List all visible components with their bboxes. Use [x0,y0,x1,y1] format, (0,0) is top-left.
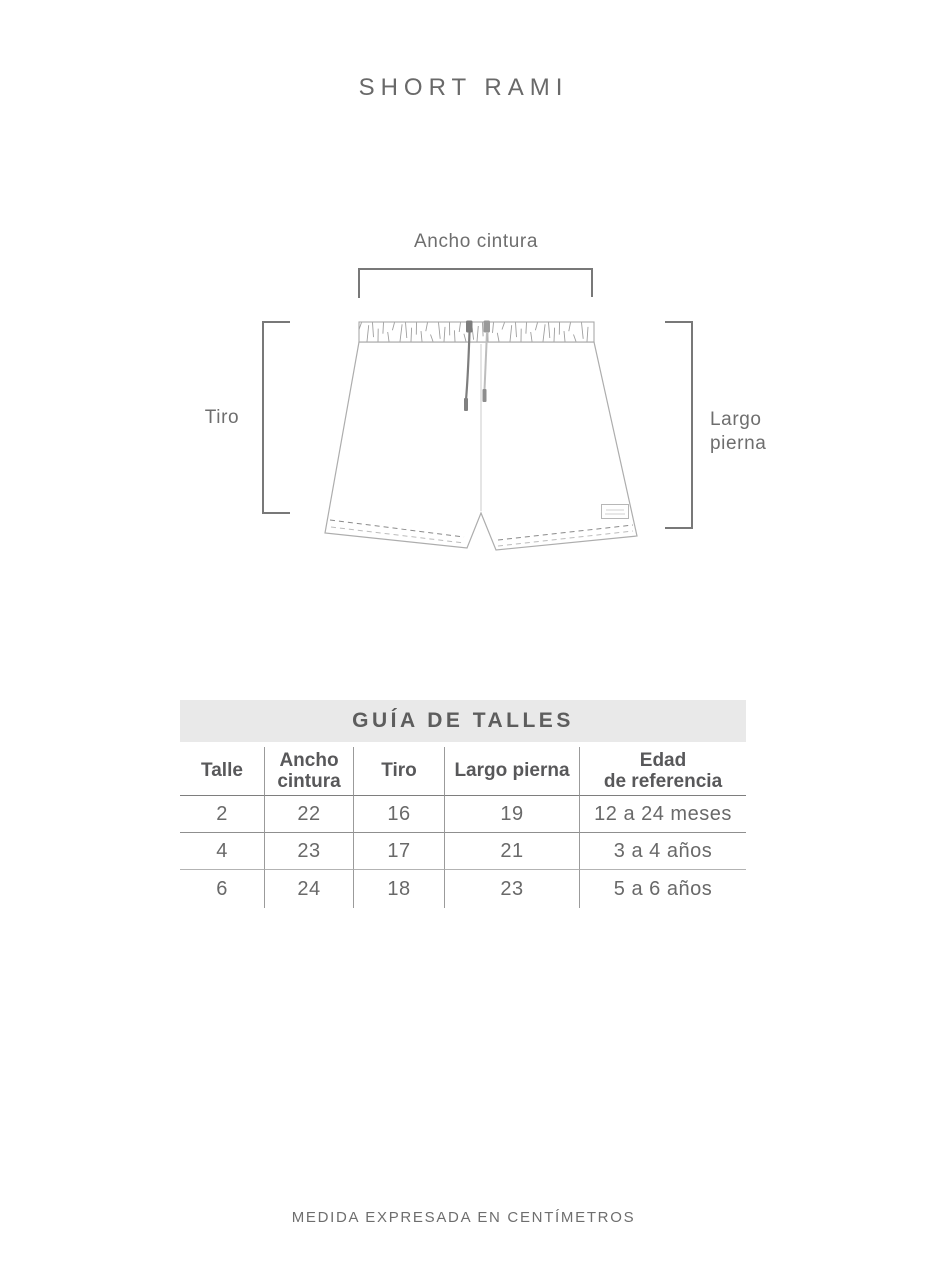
table-cell: 2 [180,796,264,833]
table-cell: 16 [353,796,444,833]
size-guide-table: Talle Ancho cintura Tiro Largo pierna Ed… [180,747,746,908]
shorts-illustration [0,0,927,640]
size-guide-title: GUÍA DE TALLES [352,709,574,733]
drawstring-right-aglet [483,389,487,402]
table-cell: 4 [180,833,264,870]
table-cell: 18 [353,870,444,908]
table-cell: 17 [353,833,444,870]
col-header-edad: Edad de referencia [579,747,746,796]
table-cell: 12 a 24 meses [579,796,746,833]
rise-bracket [263,322,290,513]
table-cell: 23 [264,833,353,870]
table-cell: 21 [444,833,579,870]
rise-measure-label: Tiro [205,407,239,429]
leg-measure-label: Largo pierna [710,408,794,457]
table-cell: 3 a 4 años [579,833,746,870]
size-guide-header-band: GUÍA DE TALLES [180,700,746,742]
table-cell: 6 [180,870,264,908]
table-cell: 23 [444,870,579,908]
leg-length-bracket [665,322,692,528]
drawstring-left-aglet [464,398,468,411]
col-header-largo-pierna: Largo pierna [444,747,579,796]
col-header-ancho-cintura: Ancho cintura [264,747,353,796]
waist-measure-label: Ancho cintura [414,231,538,253]
table-cell: 5 a 6 años [579,870,746,908]
table-cell: 19 [444,796,579,833]
drawstring-left-knot [466,321,473,333]
drawstring-right-knot [484,321,491,333]
col-header-tiro: Tiro [353,747,444,796]
footer-note: MEDIDA EXPRESADA EN CENTÍMETROS [292,1209,636,1226]
size-guide-section: GUÍA DE TALLES Talle Ancho cintura Tiro … [180,700,746,908]
col-header-talle: Talle [180,747,264,796]
table-cell: 22 [264,796,353,833]
table-cell: 24 [264,870,353,908]
waist-bracket [359,269,592,298]
brand-label-patch [602,505,629,519]
